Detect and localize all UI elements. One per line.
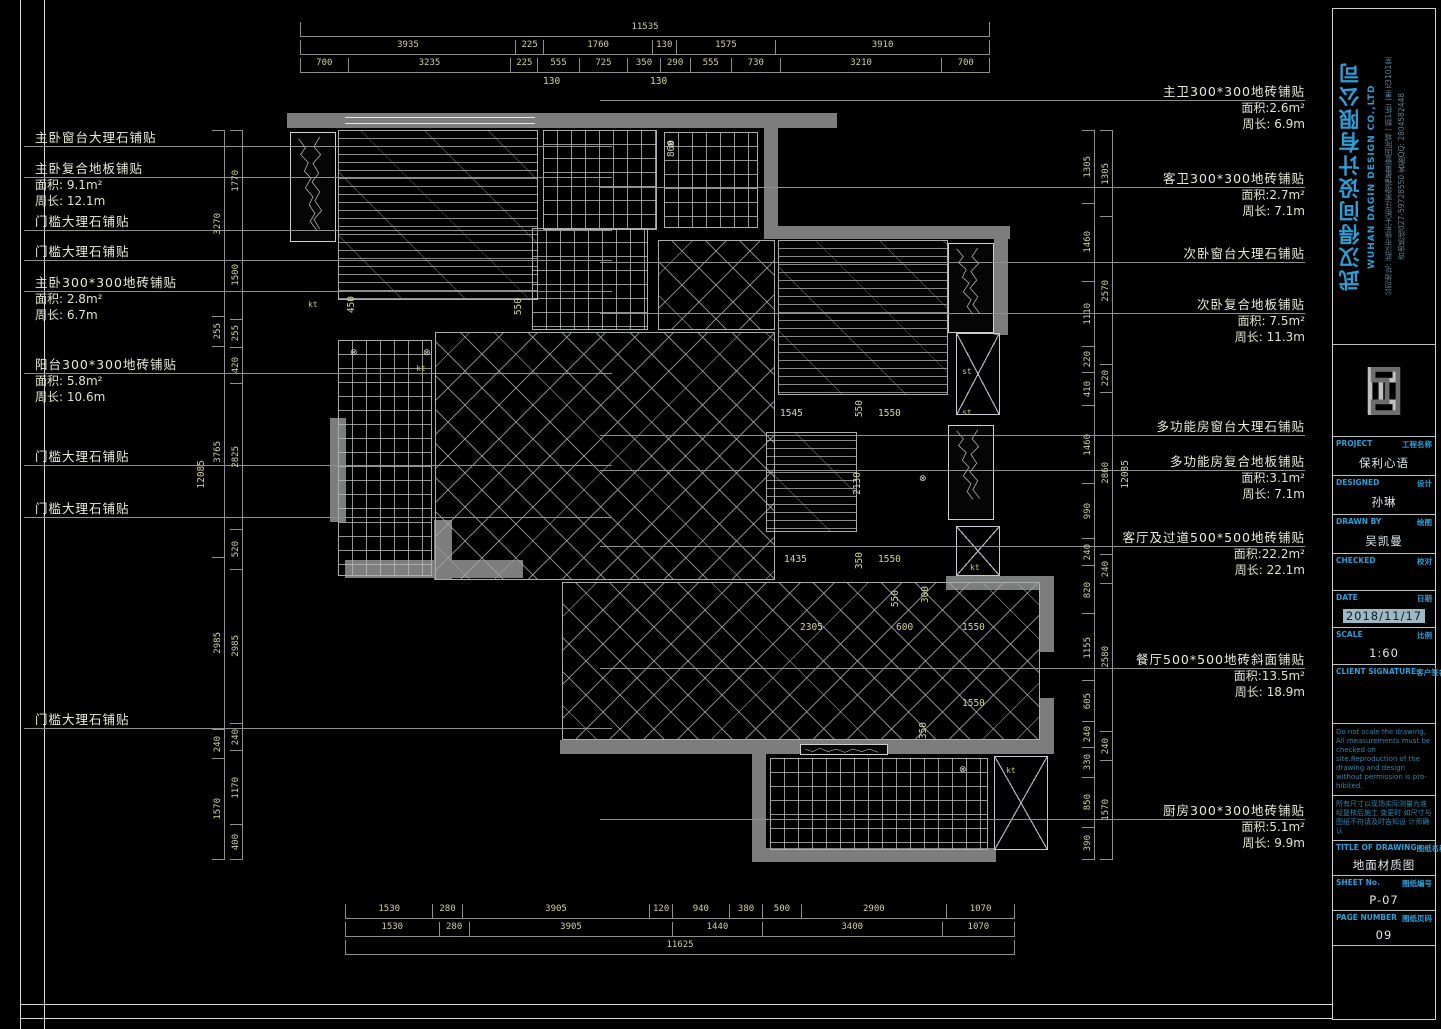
dimension-segment: 700: [941, 58, 990, 72]
field-value-text: 保利心语: [1359, 455, 1409, 471]
floor-drain-icon: ⊗: [919, 475, 927, 484]
dimension-text: 520: [231, 541, 241, 557]
leader-line: [600, 262, 1305, 263]
dimension-segment: 290: [660, 58, 690, 72]
dimension-segment: 520: [230, 529, 242, 569]
annotation-left: 主卧窗台大理石铺贴: [35, 130, 157, 146]
dimension-segment: 225: [515, 40, 543, 54]
field-value: 孙琳: [1333, 489, 1435, 515]
dimension-segment: 330: [1082, 747, 1094, 777]
field-value: [1333, 678, 1435, 724]
annotation-detail: 面积: 5.8m²: [35, 373, 177, 389]
field-label-cn: 设计: [1417, 478, 1432, 489]
annotation-title: 次卧复合地板铺贴: [1197, 297, 1305, 313]
field-label-en: DATE: [1336, 593, 1358, 604]
wall-kitchen-bottom: [752, 848, 996, 862]
dimension-row: 15302803905144034001070: [345, 922, 1015, 937]
window-line: [345, 117, 535, 118]
dimension-segment: 1500: [230, 230, 242, 318]
annotation-detail: 周长: 6.9m: [1163, 116, 1305, 132]
interior-dimension: 350: [918, 722, 929, 739]
field-value: 吴凯曼: [1333, 528, 1435, 554]
field-value-text: 地面材质图: [1353, 857, 1416, 873]
field-label-cn: 工程名称: [1402, 439, 1432, 450]
dimension-segment: 1070: [946, 904, 1015, 918]
dimension-segment: 2985: [212, 557, 224, 729]
leader-line: [600, 546, 1305, 547]
interior-dimension: 130: [543, 76, 560, 87]
overall-dim-left: 12085: [196, 460, 207, 489]
leader-line: [600, 435, 1305, 436]
leader-line: [600, 313, 1305, 314]
dimension-segment: 220: [1082, 346, 1094, 372]
dimension-segment: 555: [537, 58, 578, 72]
annotation-detail: 周长: 7.1m: [1163, 203, 1305, 219]
dimension-segment: 2900: [801, 904, 946, 918]
leader-line: [24, 146, 612, 147]
dimension-segment: 240: [1082, 721, 1094, 747]
field-value: 1:60: [1333, 641, 1435, 665]
dimension-segment: 2860: [1100, 392, 1112, 554]
leader-line: [24, 230, 612, 231]
multi-room-wood-floor: [766, 432, 857, 532]
dimension-segment: 1530: [345, 922, 439, 936]
field-header: PAGE NUMBER图纸页码: [1333, 911, 1435, 924]
interior-dimension: 350: [854, 552, 865, 569]
annotation-right: 客卫300*300地砖铺贴面积:2.7m²周长: 7.1m: [1163, 171, 1305, 219]
dimension-segment: 725: [579, 58, 628, 72]
dimension-segment: 2580: [1100, 583, 1112, 731]
dimension-segment: 1760: [543, 40, 652, 54]
frame-line-bottom-outer: [20, 1018, 1332, 1019]
annotation-detail: 面积:3.1m²: [1170, 470, 1305, 486]
overall-dim-right: 12085: [1120, 460, 1131, 489]
master-bedroom-wood-floor: [338, 130, 538, 300]
interior-dimension: 550: [513, 298, 524, 315]
field-value: 地面材质图: [1333, 854, 1435, 876]
dimension-text: 240: [231, 729, 241, 745]
dimension-segment: 500: [762, 904, 800, 918]
interior-dimension: 1435: [784, 554, 807, 565]
dimension-segment: 1575: [676, 40, 776, 54]
company-name-en: WUHAN DAGIN DESIGN CO.,LTD: [1367, 15, 1383, 338]
dimension-text: 605: [1083, 693, 1093, 709]
annotation-detail: 面积: 7.5m²: [1197, 313, 1305, 329]
dimension-column: 3270255376529852401570: [212, 130, 225, 860]
dimension-segment: 3270: [212, 130, 224, 316]
leader-line: [24, 291, 612, 292]
company-logo: [1333, 345, 1435, 437]
annotation-left: 阳台300*300地砖铺贴面积: 5.8m²周长: 10.6m: [35, 357, 177, 405]
interior-dimension: 1550: [878, 554, 901, 565]
annotation-title: 阳台300*300地砖铺贴: [35, 357, 177, 373]
dimension-text: 400: [231, 834, 241, 850]
living-room-diagonal-tile: [435, 332, 775, 580]
window-line: [345, 123, 535, 124]
second-bedroom-wood-floor: [778, 240, 948, 395]
dimension-segment: 1570: [1100, 760, 1112, 860]
dimension-segment: 225: [510, 58, 537, 72]
cad-floor-plan-sheet: 主卧窗台大理石铺贴主卧复合地板铺贴面积: 9.1m²周长: 12.1m门槛大理石…: [0, 0, 1441, 1029]
dimension-text: 3270: [213, 213, 223, 235]
dimension-text: 2860: [1101, 462, 1111, 484]
dimension-segment: 2985: [230, 569, 242, 722]
leader-line: [24, 373, 612, 374]
annotation-right: 厨房300*300地砖铺贴面积:5.1m²周长: 9.9m: [1163, 803, 1305, 851]
interior-dimension: 130: [650, 76, 667, 87]
dimension-text: 1570: [1101, 799, 1111, 821]
dimension-segment: 220: [1100, 364, 1112, 392]
dimension-segment: 850: [1082, 777, 1094, 827]
floor-marker-kt: kt: [970, 563, 980, 572]
dimension-column: 13052570220286024025802401570: [1100, 130, 1113, 860]
annotation-detail: 周长: 9.9m: [1163, 835, 1305, 851]
wall-bed2-right: [994, 239, 1008, 335]
interior-dimension: 1550: [878, 408, 901, 419]
annotation-detail: 面积:13.5m²: [1136, 668, 1305, 684]
dimension-text: 1170: [231, 777, 241, 799]
interior-dimension: 550: [854, 400, 865, 417]
field-value-text: 吴凯曼: [1365, 533, 1403, 549]
frame-line-bottom-inner: [20, 1004, 1332, 1005]
annotation-title: 主卧窗台大理石铺贴: [35, 130, 157, 146]
dimension-text: 2985: [231, 635, 241, 657]
dimension-segment: 3235: [348, 58, 511, 72]
dimension-segment: 1440: [672, 922, 761, 936]
dimension-segment: 1070: [942, 922, 1015, 936]
annotation-title: 主卧300*300地砖铺贴: [35, 275, 177, 291]
field-header: DRAWN BY绘图: [1333, 515, 1435, 528]
field-label-cn: 图纸页码: [1402, 913, 1432, 924]
field-value-text: 2018/11/17: [1343, 609, 1425, 623]
dimension-text: 2570: [1101, 280, 1111, 302]
dimension-text: 1570: [213, 798, 223, 820]
dimension-segment: 1570: [212, 758, 224, 860]
dimension-segment: 3905: [469, 922, 673, 936]
dimension-segment: 2570: [1100, 216, 1112, 364]
dimension-text: 1110: [1083, 303, 1093, 325]
master-bath-tile-floor-lower: [532, 228, 648, 330]
dimension-segment: 3765: [212, 346, 224, 557]
kitchen-marble-sill: [800, 744, 888, 755]
dining-diagonal-tile: [562, 582, 1040, 740]
interior-dimension: 2305: [800, 622, 823, 633]
dimension-segment: 3905: [462, 904, 650, 918]
interior-dimension: 550: [890, 590, 901, 607]
dimension-row: 11535: [300, 22, 990, 37]
field-header: SCALE比例: [1333, 628, 1435, 641]
dimension-segment: 1305: [1100, 130, 1112, 216]
kitchen-tile-floor: [770, 758, 988, 850]
leader-line: [600, 668, 1305, 669]
dimension-segment: 350: [627, 58, 659, 72]
dimension-text: 1155: [1083, 637, 1093, 659]
field-header: CLIENT SIGNATURE客户签名: [1333, 665, 1435, 678]
master-bath-tile-floor-upper: [543, 130, 657, 230]
annotation-left: 主卧300*300地砖铺贴面积: 2.8m²周长: 6.7m: [35, 275, 177, 323]
dimension-segment: 940: [672, 904, 729, 918]
dimension-text: 255: [231, 325, 241, 341]
field-label-cn: 图纸名称: [1417, 843, 1441, 854]
interior-dimension: 1545: [780, 408, 803, 419]
dimension-segment: 730: [731, 58, 780, 72]
dimension-segment: 2825: [230, 383, 242, 529]
leader-line: [24, 260, 612, 261]
dimension-row: 11625: [345, 940, 1015, 955]
annotation-detail: 周长: 10.6m: [35, 389, 177, 405]
leader-line: [600, 100, 1305, 101]
dimension-text: 240: [1083, 726, 1093, 742]
logo-icon: [1353, 360, 1415, 422]
field-label-en: PAGE NUMBER: [1336, 913, 1397, 924]
field-label-en: PROJECT: [1336, 439, 1372, 450]
dimension-segment: 1460: [1082, 203, 1094, 282]
field-label-cn: 图纸编号: [1402, 878, 1432, 889]
annotation-title: 门槛大理石铺贴: [35, 244, 130, 260]
field-header: PROJECT工程名称: [1333, 437, 1435, 450]
balcony-tile-floor: [338, 340, 432, 576]
wall-bed2-top: [764, 226, 1010, 239]
floor-marker-kt: kt: [416, 364, 426, 373]
dimension-text: 2580: [1101, 646, 1111, 668]
dimension-segment: 1305: [1082, 130, 1094, 203]
floor-marker-kt: kt: [1006, 766, 1016, 775]
floor-drain-icon: ⊗: [959, 766, 967, 775]
dimension-text: 1460: [1083, 231, 1093, 253]
field-value-text: 09: [1376, 928, 1393, 942]
dimension-segment: 3910: [775, 40, 990, 54]
dimension-segment: 280: [432, 904, 461, 918]
annotation-title: 主卫300*300地砖铺贴: [1163, 84, 1305, 100]
dimension-segment: 120: [649, 904, 671, 918]
dimension-segment: 700: [300, 58, 348, 72]
dimension-text: 410: [1083, 381, 1093, 397]
second-bedroom-marble-sill: [948, 243, 994, 333]
field-value: 09: [1333, 924, 1435, 946]
annotation-detail: 周长: 22.1m: [1123, 562, 1305, 578]
annotation-right: 主卫300*300地砖铺贴面积:2.6m²周长: 6.9m: [1163, 84, 1305, 132]
dimension-segment: 1530: [345, 904, 432, 918]
dimension-row: 1530280390512094038050029001070: [345, 904, 1015, 919]
annotation-title: 次卧窗台大理石铺贴: [1183, 246, 1305, 262]
wall-kitchen-left: [752, 754, 766, 854]
dimension-segment: 3935: [300, 40, 515, 54]
dimension-text: 330: [1083, 754, 1093, 770]
leader-line: [24, 517, 612, 518]
dimension-segment: 240: [1100, 731, 1112, 760]
interior-dimension: 1550: [962, 622, 985, 633]
floor-marker-st: st: [962, 367, 972, 376]
frame-line-left-outer: [20, 0, 21, 1029]
wall-guestbath-right: [764, 128, 778, 228]
corridor-diagonal-tile: [658, 240, 775, 330]
dimension-segment: 240: [230, 723, 242, 751]
interior-dimension: 450: [346, 296, 357, 313]
field-value-text: 孙琳: [1372, 494, 1397, 510]
dimension-text: 220: [1101, 370, 1111, 386]
annotation-right: 次卧窗台大理石铺贴: [1183, 246, 1305, 262]
wall-top: [287, 113, 837, 128]
multi-room-marble-sill: [948, 425, 994, 520]
field-header: TITLE OF DRAWING图纸名称: [1333, 841, 1435, 854]
dimension-segment: 11625: [345, 940, 1015, 954]
annotation-detail: 面积:2.6m²: [1163, 100, 1305, 116]
field-value: P-07: [1333, 889, 1435, 911]
dimension-text: 1460: [1083, 434, 1093, 456]
dimension-text: 240: [1083, 544, 1093, 560]
interior-dimension: 600: [896, 622, 913, 633]
dimension-text: 3765: [213, 441, 223, 463]
dimension-segment: 1460: [1082, 405, 1094, 484]
dimension-text: 420: [231, 357, 241, 373]
note-cn: 所有尺寸以现场实际测量为准经复核后施工 变更时 如尺寸与图纸不符请及时告知设 计…: [1333, 796, 1435, 841]
dimension-segment: 400: [230, 824, 242, 860]
field-label-en: SHEET No.: [1336, 878, 1380, 889]
field-label-cn: 校对: [1417, 556, 1432, 567]
annotation-detail: 面积: 2.8m²: [35, 291, 177, 307]
dimension-column: 1305146011102204101460990240820115560524…: [1082, 130, 1095, 860]
dimension-segment: 255: [212, 316, 224, 346]
annotation-right: 多功能房复合地板铺贴面积:3.1m²周长: 7.1m: [1170, 454, 1305, 502]
leader-line: [24, 465, 612, 466]
dimension-segment: 1770: [230, 130, 242, 230]
wall-dining-right-upper: [1040, 590, 1054, 652]
field-value-text: 1:60: [1369, 646, 1399, 660]
field-label-en: DESIGNED: [1336, 478, 1379, 489]
dimension-segment: 1170: [230, 750, 242, 824]
dimension-text: 240: [213, 736, 223, 752]
dimension-segment: 240: [1082, 538, 1094, 564]
field-header: SHEET No.图纸编号: [1333, 876, 1435, 889]
field-value: [1333, 567, 1435, 591]
annotation-detail: 周长: 6.7m: [35, 307, 177, 323]
dimension-segment: 820: [1082, 565, 1094, 614]
field-label-en: CHECKED: [1336, 556, 1376, 567]
dimension-text: 1305: [1083, 156, 1093, 178]
dimension-segment: 255: [230, 319, 242, 347]
company-section: 武汉得间设计有限公司 WUHAN DAGIN DESIGN CO.,LTD 公司…: [1333, 9, 1435, 345]
dimension-text: 2985: [213, 632, 223, 654]
master-bedroom-marble-sill: [290, 132, 336, 242]
annotation-right: 客厅及过道500*500地砖铺贴面积:22.2m²周长: 22.1m: [1123, 530, 1305, 578]
dimension-text: 1305: [1101, 163, 1111, 185]
field-label-en: SCALE: [1336, 630, 1363, 641]
dimension-column: 17701500255420282552029852401170400: [230, 130, 243, 860]
floor-drain-icon: ⊗: [423, 349, 431, 358]
annotation-title: 多功能房复合地板铺贴: [1170, 454, 1305, 470]
annotation-detail: 周长: 7.1m: [1170, 486, 1305, 502]
wall-dining-right-lower: [1040, 698, 1054, 744]
dimension-segment: 240: [1100, 554, 1112, 583]
leader-line: [600, 819, 1305, 820]
dimension-row: 3935225176013015753910: [300, 40, 990, 55]
annotation-title: 门槛大理石铺贴: [35, 214, 130, 230]
annotation-left: 门槛大理石铺贴: [35, 449, 130, 465]
dimension-row: 70032352255557253502905557303210700: [300, 58, 990, 73]
leader-line: [24, 728, 612, 729]
dimension-text: 255: [213, 323, 223, 339]
dimension-segment: 240: [212, 729, 224, 758]
field-label-cn: 日期: [1417, 593, 1432, 604]
annotation-detail: 面积:5.1m²: [1163, 819, 1305, 835]
annotation-left: 门槛大理石铺贴: [35, 501, 130, 517]
leader-line: [600, 470, 1305, 471]
dimension-segment: 390: [1082, 827, 1094, 860]
annotation-right: 餐厅500*500地砖斜面铺贴面积:13.5m²周长: 18.9m: [1136, 652, 1305, 700]
dimension-segment: 420: [230, 347, 242, 383]
dimension-text: 390: [1083, 835, 1093, 851]
dimension-segment: 380: [729, 904, 762, 918]
annotation-right: 次卧复合地板铺贴面积: 7.5m²周长: 11.3m: [1197, 297, 1305, 345]
company-name-cn: 武汉得间设计有限公司: [1335, 15, 1367, 338]
dimension-text: 1770: [231, 170, 241, 192]
field-label-cn: 绘图: [1417, 517, 1432, 528]
annotation-left: 门槛大理石铺贴: [35, 244, 130, 260]
dimension-segment: 1155: [1082, 613, 1094, 680]
field-label-en: DRAWN BY: [1336, 517, 1381, 528]
dimension-text: 240: [1101, 738, 1111, 754]
dimension-segment: 1110: [1082, 281, 1094, 346]
title-block-fields: PROJECT工程名称保利心语DESIGNED设计孙琳DRAWN BY绘图吴凯曼…: [1333, 437, 1435, 724]
dimension-segment: 130: [652, 40, 676, 54]
annotation-title: 多功能房窗台大理石铺贴: [1156, 419, 1305, 435]
note-en: Do not scale the drawing, All measuremen…: [1333, 724, 1435, 796]
field-header: DESIGNED设计: [1333, 476, 1435, 489]
dimension-segment: 555: [690, 58, 731, 72]
field-value-text: P-07: [1369, 893, 1398, 907]
dimension-text: 990: [1083, 503, 1093, 519]
annotation-detail: 周长: 11.3m: [1197, 329, 1305, 345]
annotation-detail: 面积: 9.1m²: [35, 177, 143, 193]
field-header: DATE日期: [1333, 591, 1435, 604]
annotation-title: 门槛大理石铺贴: [35, 449, 130, 465]
field-header: CHECKED校对: [1333, 554, 1435, 567]
dimension-text: 820: [1083, 582, 1093, 598]
dimension-segment: 11535: [300, 22, 990, 36]
leader-line: [24, 177, 612, 178]
title-block: 武汉得间设计有限公司 WUHAN DAGIN DESIGN CO.,LTD 公司…: [1332, 8, 1436, 1020]
dimension-text: 850: [1083, 794, 1093, 810]
dimension-text: 240: [1101, 561, 1111, 577]
dimension-segment: 280: [439, 922, 469, 936]
annotation-title: 客厅及过道500*500地砖铺贴: [1123, 530, 1305, 546]
annotation-detail: 面积:22.2m²: [1123, 546, 1305, 562]
leader-line: [600, 187, 1305, 188]
guest-bath-tile-floor: [664, 132, 758, 228]
dimension-segment: 410: [1082, 372, 1094, 405]
floor-drain-icon: ⊗: [350, 349, 358, 358]
floor-marker-kt: kt: [308, 300, 318, 309]
dimension-text: 220: [1083, 351, 1093, 367]
dimension-segment: 3400: [762, 922, 942, 936]
field-label-cn: 客户签名: [1416, 667, 1441, 678]
dimension-segment: 990: [1082, 483, 1094, 538]
dimension-segment: 605: [1082, 680, 1094, 720]
annotation-detail: 面积:2.7m²: [1163, 187, 1305, 203]
company-address: 公司地址: 武汉市徐东大街汪家墩福星惠誉国际城一期1栋二单元3101室: [1383, 15, 1396, 338]
annotation-title: 客卫300*300地砖铺贴: [1163, 171, 1305, 187]
elevator-shaft: [994, 756, 1048, 850]
interior-dimension: 300: [920, 586, 931, 603]
annotation-detail: 周长: 18.9m: [1136, 684, 1305, 700]
company-hotline: 咨询热线027-59728550 客服QQ: 2804582448: [1396, 15, 1409, 338]
annotation-left: 门槛大理石铺贴: [35, 712, 130, 728]
field-label-en: TITLE OF DRAWING: [1336, 843, 1417, 854]
annotation-title: 门槛大理石铺贴: [35, 712, 130, 728]
annotation-left: 主卧复合地板铺贴面积: 9.1m²周长: 12.1m: [35, 161, 143, 209]
annotation-right: 多功能房窗台大理石铺贴: [1156, 419, 1305, 435]
annotation-title: 主卧复合地板铺贴: [35, 161, 143, 177]
